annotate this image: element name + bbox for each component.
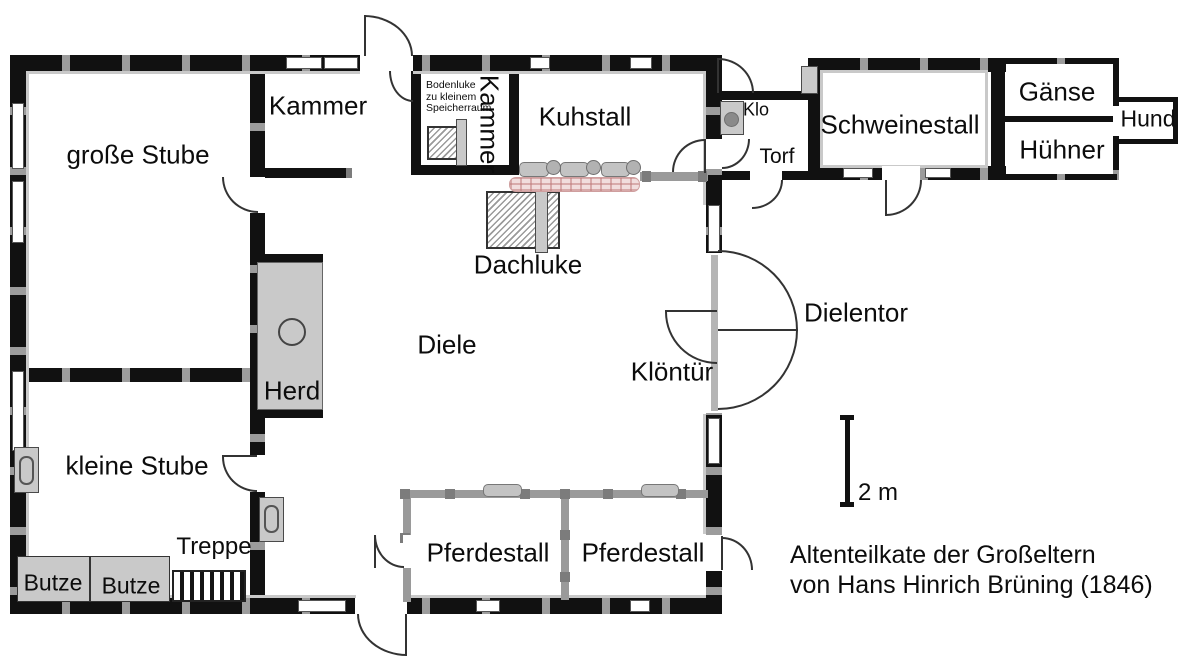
door-leaf [222, 455, 257, 457]
wall-lining [26, 71, 29, 596]
bodenluke-note: Bodenluke zu kleinem Speicherraum [426, 80, 491, 115]
room-label-diele: Diele [417, 330, 476, 361]
window [530, 57, 550, 69]
room-label-kleine-stube: kleine Stube [65, 451, 208, 482]
wall-schweinestall-right [991, 58, 1005, 180]
door-opening-pferdestall-right [706, 535, 722, 571]
cow-stall [560, 162, 589, 177]
room-label-klo: Klo [743, 100, 769, 121]
window [708, 418, 720, 464]
door-leaf [374, 535, 376, 568]
feature-label-kloentuer: Klöntür [631, 357, 713, 388]
wall-connector [400, 489, 410, 499]
door-opening-pferdestall-left [403, 535, 411, 568]
door-opening-torf-bottom [750, 171, 782, 180]
door-leaf [717, 58, 719, 93]
room-label-pferdestall-links: Pferdestall [427, 538, 550, 569]
wall-connector [642, 171, 651, 182]
room-label-pferdestall-rechts: Pferdestall [582, 538, 705, 569]
room-label-huehner: Hühner [1019, 135, 1104, 166]
room-label-torf: Torf [759, 145, 794, 169]
wall-connector [560, 572, 570, 582]
wall-connector [445, 489, 455, 499]
dachluke-ladder [535, 186, 548, 253]
wall-connector [603, 489, 613, 499]
wall-hund-bottom [1118, 139, 1178, 144]
door-leaf [704, 139, 706, 173]
wall-lining [407, 595, 706, 598]
herd-ring [278, 318, 306, 346]
ofen-left-door [19, 456, 34, 485]
door-opening-schweinestall [882, 166, 920, 180]
window [324, 57, 358, 69]
room-label-grosse-stube: große Stube [66, 140, 209, 171]
door-opening-bottom [355, 598, 407, 614]
cow-stall [519, 162, 549, 177]
scale-label: 2 m [858, 479, 898, 507]
window [476, 600, 500, 612]
wall-lining [413, 71, 706, 74]
wall-fowl-top [1005, 58, 1119, 64]
stall-post [546, 160, 561, 175]
wall-stube-divider [10, 368, 265, 382]
caption-line-2: von Hans Hinrich Brüning (1846) [790, 570, 1153, 600]
door-arc-schweinestall [886, 180, 922, 216]
wall-connector [560, 489, 570, 499]
door-leaf [721, 536, 723, 570]
wall-lining [26, 71, 360, 74]
dielentor-leaf [718, 329, 798, 331]
stall-post [586, 160, 601, 175]
wall-stube-diele-a [250, 71, 265, 177]
partition-pferdestall-divider [561, 490, 569, 600]
door-arc-dielentor-lower [718, 330, 798, 410]
door-arc-bottom [357, 614, 407, 656]
window [630, 57, 652, 69]
door-arc-dielentor-upper [718, 250, 798, 330]
scale-bar [845, 418, 850, 506]
feature-label-dachluke: Dachluke [474, 250, 582, 281]
room-label-schweinestall: Schweinestall [821, 110, 980, 141]
door-arc-kuhstall [672, 139, 705, 172]
herd-cap-top [257, 254, 323, 262]
door-arc-kleine-stube [222, 457, 257, 492]
door-leaf [364, 15, 366, 56]
wall-hund-top [1118, 97, 1178, 102]
ofen-right-door [264, 505, 279, 533]
scale-bar-cap-top [840, 415, 854, 420]
dachluke-hatch [486, 191, 560, 249]
wall-lining [703, 71, 706, 205]
window [630, 600, 650, 612]
room-label-gaense: Gänse [1019, 77, 1096, 108]
horse-trough [641, 484, 679, 497]
scale-bar-cap-bottom [840, 502, 854, 507]
door-arc-pferdestall-right [722, 537, 753, 570]
door-arc-pferdestall-left [374, 535, 404, 568]
feature-label-herd: Herd [264, 376, 320, 407]
caption-line-1: Altenteilkate der Großeltern [790, 540, 1153, 570]
caption: Altenteilkate der Großeltern von Hans Hi… [790, 540, 1153, 600]
room-label-hund: Hund [1121, 106, 1176, 133]
feature-label-dielentor: Dielentor [804, 298, 908, 329]
door-arc-grosse-stube [222, 177, 258, 213]
door-arc-torf-bottom [752, 180, 783, 209]
door-arc-klo [718, 58, 754, 93]
wall-cap [346, 168, 352, 178]
bodenluke-hatch [427, 126, 458, 160]
feeding-trough [509, 177, 640, 192]
window [708, 205, 720, 252]
window [843, 168, 873, 178]
door-leaf [405, 614, 407, 656]
window [12, 103, 24, 169]
bodenluke-ladder [456, 119, 467, 166]
wall-fowl-divider [1005, 116, 1119, 122]
room-label-kuhstall: Kuhstall [539, 102, 632, 133]
door-opening-hund [1113, 106, 1119, 136]
wall-lining [703, 414, 706, 534]
door-leaf [665, 310, 717, 312]
staircase [172, 570, 246, 602]
door-leaf [885, 180, 887, 216]
wall-connector [560, 530, 570, 540]
door-arc-entry-outer [364, 15, 413, 56]
window [12, 371, 24, 451]
schweinestall-door-panel [801, 66, 818, 94]
herd-cap-bottom [257, 410, 323, 418]
wall-kammer2-right [509, 71, 519, 175]
door-opening-entry [360, 55, 413, 71]
wall-fowl-bottom [1005, 174, 1119, 180]
window [298, 600, 346, 612]
wall-kammer-bottom [258, 168, 346, 178]
room-label-kammer: Kammer [269, 91, 367, 122]
window [286, 57, 322, 69]
feature-label-butze-2: Butze [102, 573, 161, 600]
floor-plan: 2 m große Stube Kammer Kammer Bodenluke … [0, 0, 1181, 670]
toilet-seat [724, 112, 739, 127]
window [12, 181, 24, 243]
door-arc-entry-inner [389, 71, 413, 102]
door-opening-torf [706, 139, 722, 169]
window [925, 168, 951, 178]
door-arc-torf-left [722, 139, 750, 169]
feature-label-treppe: Treppe [176, 533, 251, 561]
horse-trough [483, 484, 522, 497]
feature-label-butze-1: Butze [24, 570, 83, 597]
stall-post [626, 160, 641, 175]
